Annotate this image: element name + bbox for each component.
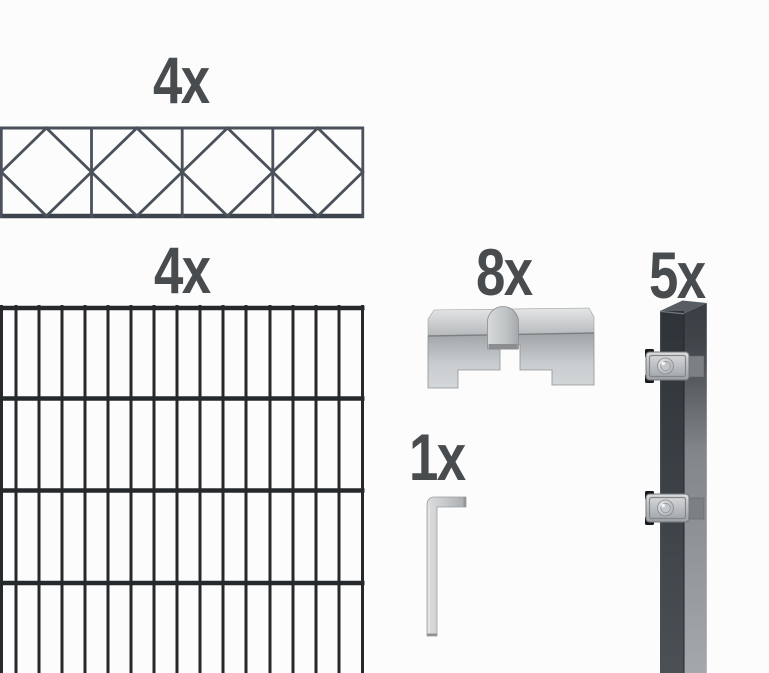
clamp-dome-base-shadow bbox=[489, 344, 518, 350]
mesh-horizontal-wires bbox=[0, 308, 365, 583]
double-rod-mesh-panel-graphic bbox=[0, 305, 366, 673]
decorative-extension-panel-graphic bbox=[0, 126, 366, 219]
product-kit-image: 4x 4x bbox=[0, 0, 769, 673]
quantity-label-decor-panel: 4x bbox=[101, 47, 261, 113]
allen-key-arm-tip bbox=[464, 497, 467, 507]
allen-key-graphic bbox=[420, 490, 476, 642]
quantity-label-cover-clamp: 8x bbox=[424, 239, 584, 305]
fence-post-graphic bbox=[642, 295, 710, 673]
quantity-label-allen-key: 1x bbox=[357, 424, 517, 490]
quantity-label-mesh-panel: 4x bbox=[102, 237, 262, 303]
allen-key-shaft-tip bbox=[427, 634, 437, 637]
cover-clamp-graphic bbox=[425, 306, 597, 394]
allen-key-body bbox=[427, 497, 466, 636]
clamp-dome-tab bbox=[488, 307, 519, 350]
